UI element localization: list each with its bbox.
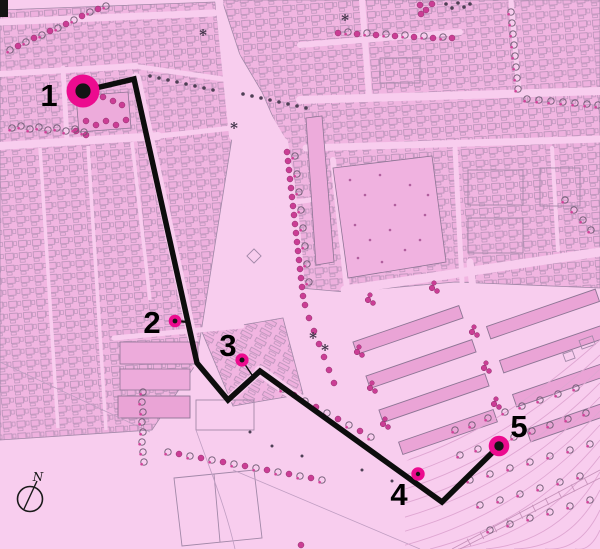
waypoint-4-label: 4 <box>390 477 408 512</box>
asterisk-icon: * <box>341 11 349 29</box>
waypoint-3-marker[interactable] <box>235 353 248 366</box>
waypoint-1-label: 1 <box>40 78 57 113</box>
waypoint-2-marker[interactable] <box>169 315 182 328</box>
asterisk-icon: * <box>309 329 317 347</box>
asterisk-icon: * <box>199 26 207 44</box>
map-canvas: * * * * * 1 2 3 4 5 N <box>0 0 600 549</box>
waypoint-5-marker[interactable] <box>489 436 510 457</box>
waypoint-4-marker[interactable] <box>411 467 424 480</box>
waypoint-3-label: 3 <box>219 328 236 363</box>
waypoint-5-label: 5 <box>510 409 527 444</box>
corner-mark <box>0 0 8 17</box>
compass-north-label: N <box>32 470 44 484</box>
waypoint-2-label: 2 <box>143 305 160 340</box>
map-screenshot: * * * * * 1 2 3 4 5 N <box>0 0 600 549</box>
asterisk-icon: * <box>321 341 329 359</box>
waypoint-1-marker[interactable] <box>67 75 100 108</box>
asterisk-icon: * <box>230 119 238 137</box>
